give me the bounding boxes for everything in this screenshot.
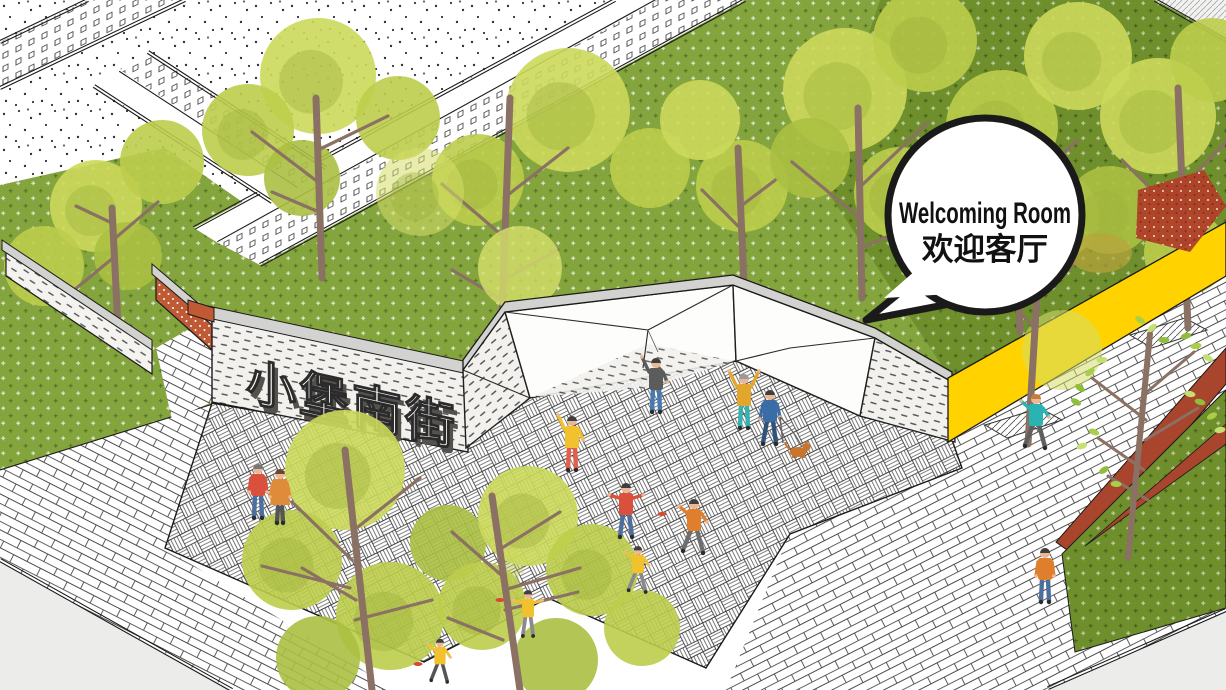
shoe	[630, 535, 634, 539]
shoe	[281, 521, 285, 525]
hand	[665, 380, 668, 383]
hand	[427, 643, 430, 646]
torso	[763, 400, 777, 422]
shoe	[681, 549, 685, 553]
hand	[520, 570, 523, 573]
shoe	[531, 634, 535, 638]
frisbee	[496, 598, 505, 602]
shoe	[658, 410, 662, 414]
hand	[624, 551, 627, 554]
hand	[1019, 399, 1022, 402]
shoe	[627, 588, 631, 592]
shoe	[1023, 444, 1027, 448]
torso	[1029, 404, 1043, 426]
shoe	[650, 410, 654, 414]
shoe	[445, 680, 449, 684]
shoe	[746, 426, 750, 430]
hand	[288, 495, 291, 498]
hand	[247, 490, 250, 493]
hand	[265, 490, 268, 493]
hand	[541, 599, 544, 602]
shoe	[738, 426, 742, 430]
hand	[640, 355, 643, 358]
torso	[687, 509, 701, 531]
shoe	[1043, 446, 1047, 450]
shoe	[774, 442, 778, 446]
hand	[648, 564, 651, 567]
torso	[619, 493, 633, 515]
tree-canopy	[94, 222, 162, 290]
tree-canopy	[356, 76, 440, 160]
hand	[758, 417, 761, 420]
shoe	[618, 535, 622, 539]
shoe	[275, 521, 279, 525]
shoe	[1039, 600, 1043, 604]
frisbee	[414, 662, 423, 666]
torso	[434, 647, 445, 665]
shoe	[644, 590, 648, 594]
hand	[607, 493, 610, 496]
hand	[581, 438, 584, 441]
tree-canopy	[770, 118, 850, 198]
hand	[556, 413, 559, 416]
torso	[632, 555, 644, 574]
tree-canopy	[660, 80, 740, 160]
shoe	[701, 551, 705, 555]
hand	[757, 369, 760, 372]
hand	[449, 656, 452, 659]
torso	[1038, 558, 1052, 580]
shoe	[566, 468, 570, 472]
shoe	[761, 442, 765, 446]
shoe	[252, 516, 256, 520]
bubble-line-1: Welcoming Room	[899, 197, 1071, 230]
torso	[522, 599, 534, 618]
shoe	[1047, 600, 1051, 604]
hand	[727, 369, 730, 372]
hand	[1034, 574, 1037, 577]
tree-trunk	[858, 108, 862, 298]
frisbee	[658, 512, 667, 516]
torso	[737, 384, 751, 406]
bubble-line-2: 欢迎客厅	[921, 232, 1048, 267]
shoe	[429, 679, 433, 683]
illustration-stage: 小堡南街 小堡南街 Welcoming Room 欢迎客厅	[0, 0, 1226, 690]
torso	[649, 368, 663, 390]
scene-illustration: 小堡南街 小堡南街 Welcoming Room 欢迎客厅	[0, 0, 1226, 690]
torso	[565, 426, 579, 448]
hand	[705, 520, 708, 523]
hand	[512, 599, 515, 602]
hand	[1052, 574, 1055, 577]
hand	[268, 495, 271, 498]
tree-canopy	[604, 590, 680, 666]
shoe	[574, 468, 578, 472]
tree-canopy	[120, 120, 204, 204]
shoe	[260, 516, 264, 520]
hand	[677, 504, 680, 507]
shoe	[521, 634, 525, 638]
hand	[641, 493, 644, 496]
torso	[251, 474, 265, 496]
hand	[1047, 415, 1050, 418]
